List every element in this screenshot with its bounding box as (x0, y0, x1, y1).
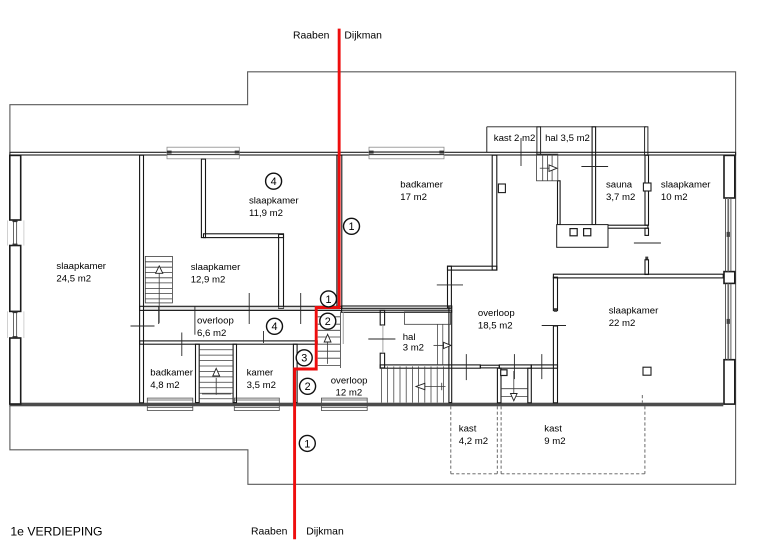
svg-text:1: 1 (348, 221, 354, 233)
svg-text:slaapkamer: slaapkamer (56, 261, 106, 272)
svg-text:2: 2 (305, 381, 311, 393)
svg-text:Raaben: Raaben (251, 526, 288, 537)
svg-text:18,5 m2: 18,5 m2 (478, 320, 513, 331)
svg-text:1: 1 (304, 438, 310, 450)
svg-text:3,5 m2: 3,5 m2 (247, 380, 276, 391)
svg-text:slaapkamer: slaapkamer (661, 180, 711, 191)
svg-text:11,9 m2: 11,9 m2 (249, 208, 283, 219)
svg-text:4,2 m2: 4,2 m2 (459, 436, 488, 447)
svg-text:slaapkamer: slaapkamer (191, 262, 241, 273)
svg-text:kast: kast (459, 424, 477, 435)
svg-text:4: 4 (271, 176, 277, 188)
svg-text:kamer: kamer (247, 367, 274, 378)
svg-text:12,9 m2: 12,9 m2 (191, 274, 226, 285)
svg-text:kast: kast (544, 424, 562, 435)
svg-text:hal 3,5 m2: hal 3,5 m2 (545, 133, 590, 144)
svg-text:Raaben: Raaben (293, 31, 330, 42)
svg-text:badkamer: badkamer (400, 179, 443, 190)
svg-text:22 m2: 22 m2 (609, 318, 636, 329)
svg-text:slaapkamer: slaapkamer (249, 195, 299, 206)
svg-text:3,7 m2: 3,7 m2 (606, 192, 635, 203)
svg-text:overloop: overloop (478, 308, 515, 319)
svg-text:overloop: overloop (197, 316, 234, 327)
svg-text:badkamer: badkamer (150, 367, 193, 378)
svg-text:overloop: overloop (331, 375, 368, 386)
svg-text:Dijkman: Dijkman (344, 31, 382, 42)
svg-text:4,8 m2: 4,8 m2 (150, 380, 179, 391)
svg-text:kast 2 m2: kast 2 m2 (494, 133, 536, 144)
svg-text:slaapkamer: slaapkamer (609, 305, 659, 316)
svg-text:4: 4 (271, 321, 277, 333)
svg-text:12 m2: 12 m2 (336, 388, 363, 399)
svg-text:10 m2: 10 m2 (661, 192, 688, 203)
svg-text:3 m2: 3 m2 (403, 342, 424, 353)
svg-text:2: 2 (325, 316, 331, 328)
svg-text:sauna: sauna (606, 179, 633, 190)
svg-text:9 m2: 9 m2 (544, 436, 565, 447)
svg-text:17 m2: 17 m2 (400, 192, 427, 203)
svg-text:24,5 m2: 24,5 m2 (56, 273, 91, 284)
svg-text:6,6 m2: 6,6 m2 (197, 328, 226, 339)
svg-text:3: 3 (301, 353, 307, 365)
svg-text:1: 1 (325, 294, 331, 306)
svg-text:Dijkman: Dijkman (306, 526, 344, 537)
svg-text:1e VERDIEPING: 1e VERDIEPING (10, 525, 102, 539)
svg-text:hal: hal (403, 332, 416, 343)
